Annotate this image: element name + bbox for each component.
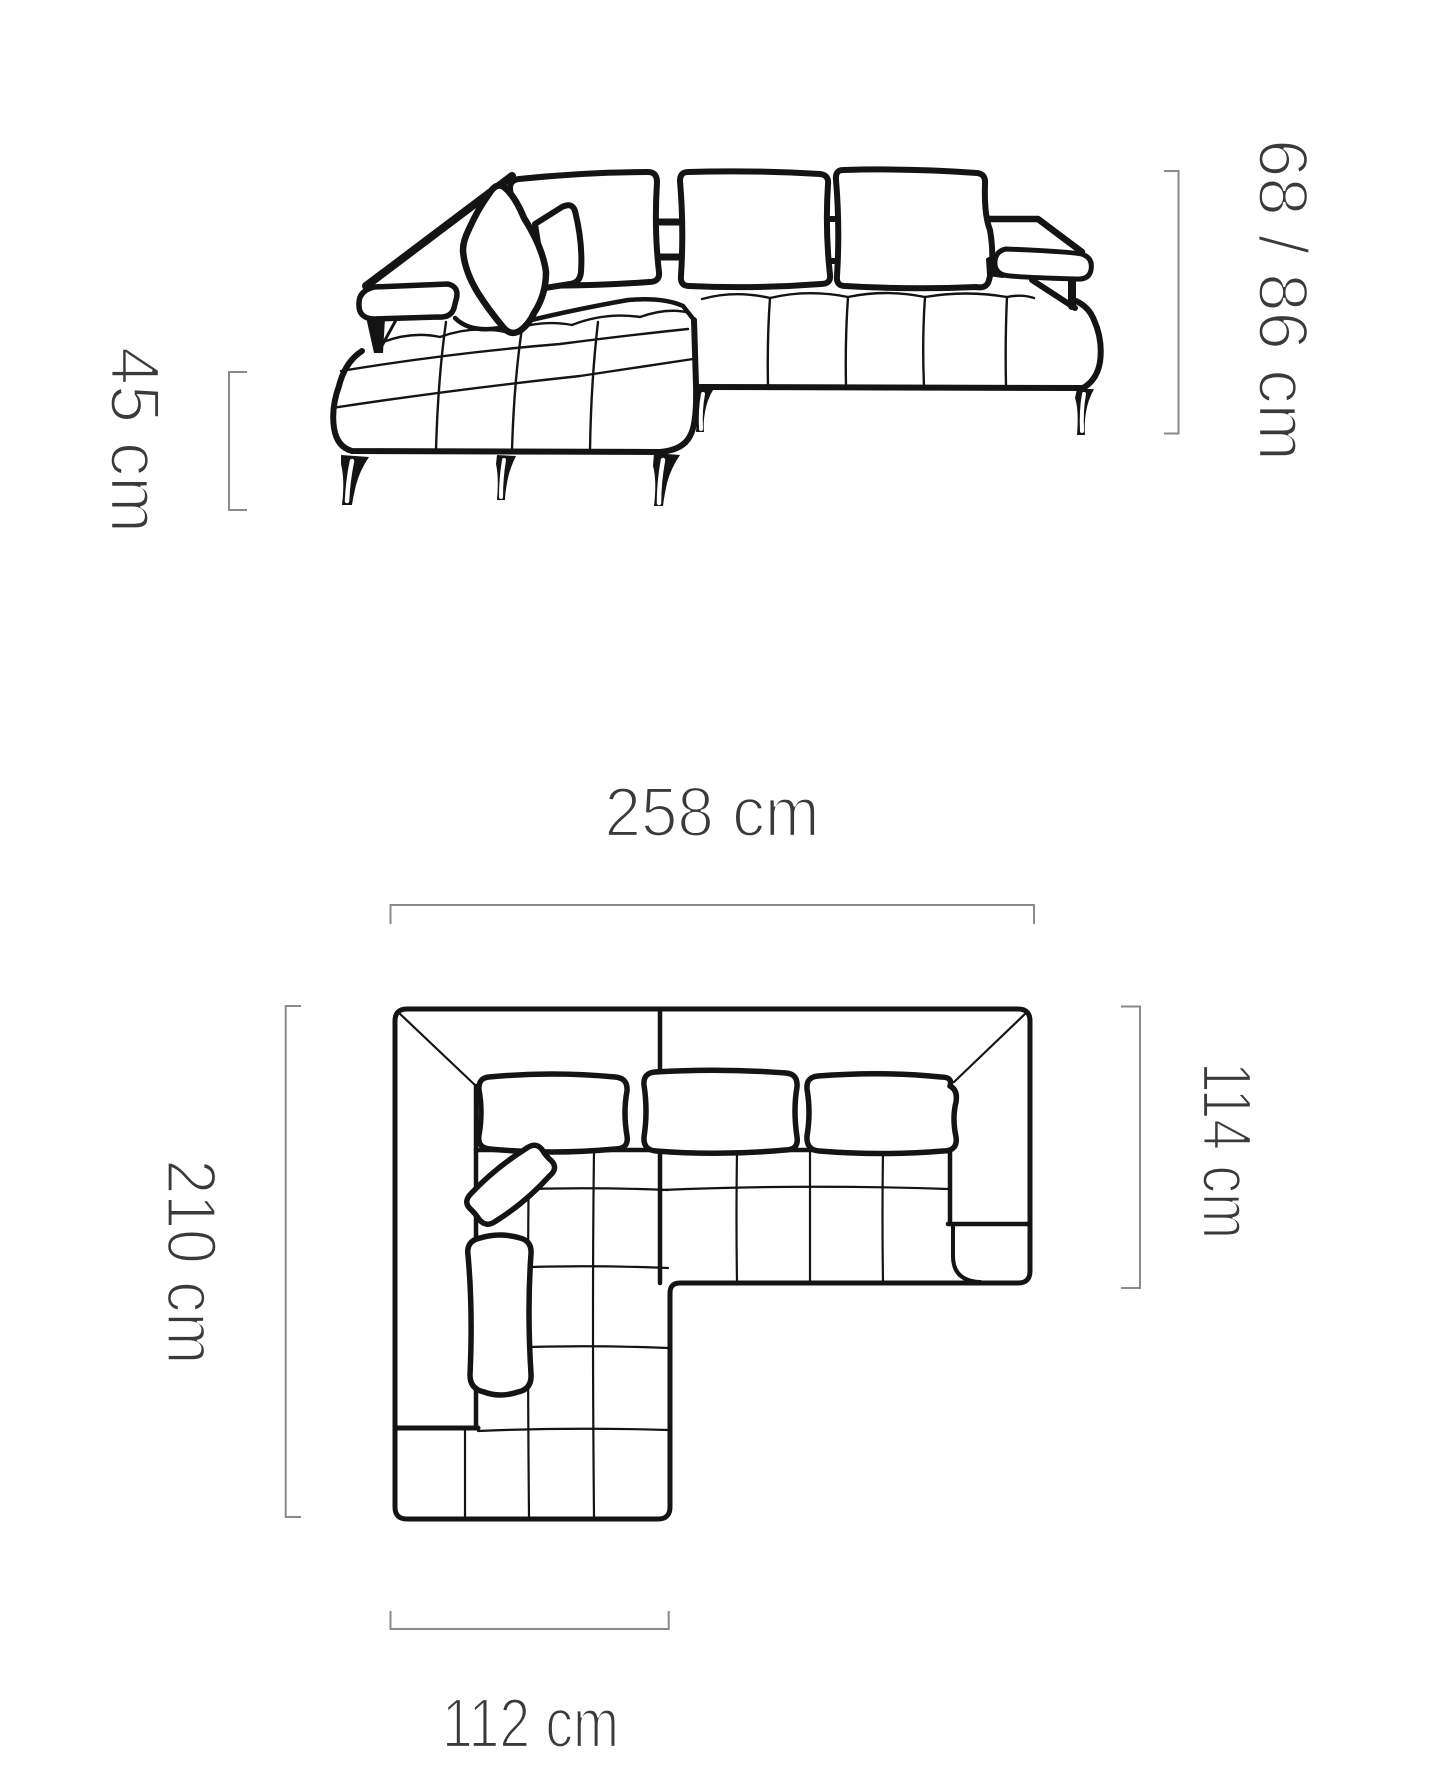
svg-text:258 cm: 258 cm <box>605 773 820 851</box>
svg-text:68 / 86 cm: 68 / 86 cm <box>1244 139 1322 461</box>
svg-text:114 cm: 114 cm <box>1188 1062 1266 1239</box>
svg-text:210 cm: 210 cm <box>153 1160 231 1365</box>
svg-text:112 cm: 112 cm <box>442 1684 619 1762</box>
svg-text:45 cm: 45 cm <box>96 347 174 533</box>
